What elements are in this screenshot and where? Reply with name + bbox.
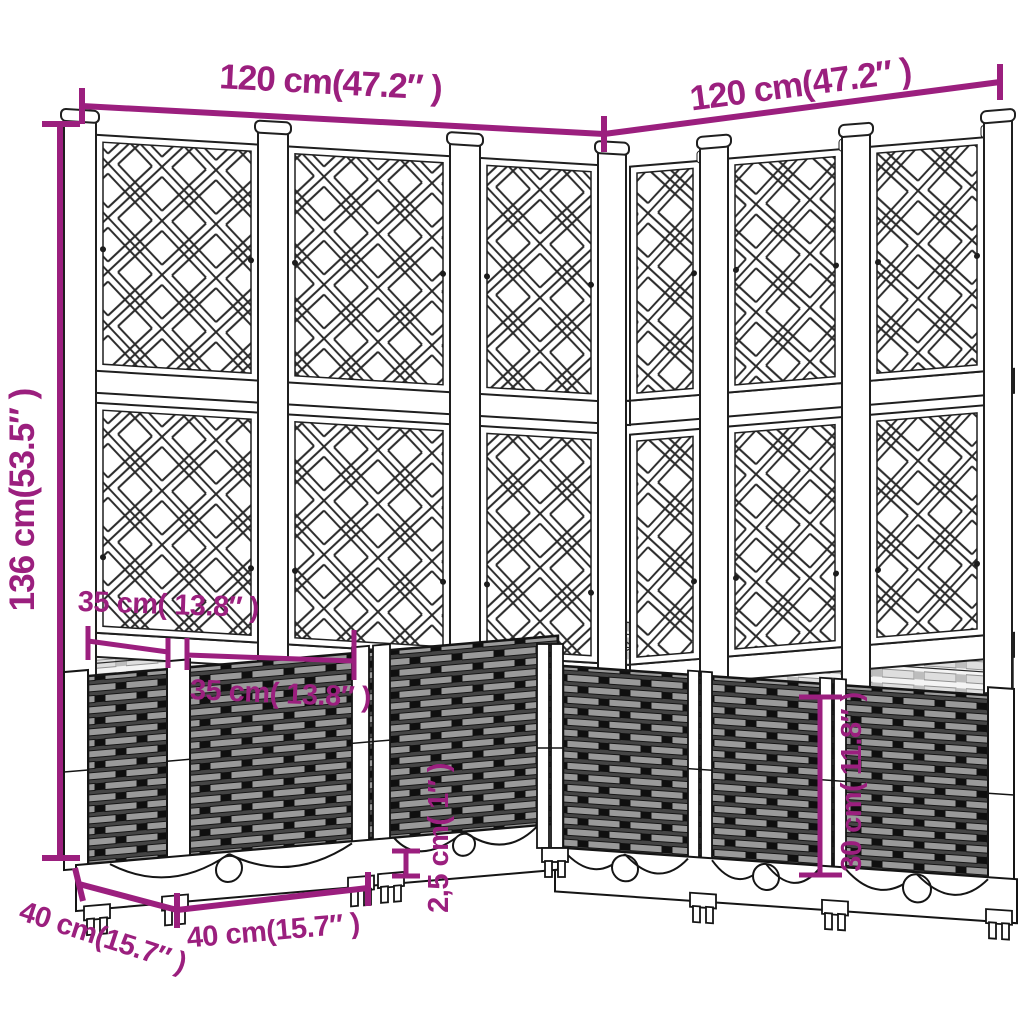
planter-left-arm [64, 628, 558, 937]
planter-right-arm [555, 657, 1017, 944]
diagram-svg: 120 cm(47.2″ ) 120 cm(47.2″ ) 136 cm(53.… [0, 0, 1024, 1024]
label-box-height: 30 cm( 11.8″ ) [836, 692, 868, 871]
trellis-right-wall [614, 109, 1015, 724]
label-planter-depth-top: 35 cm( 13.8″ ) [77, 586, 259, 624]
label-top-width-left: 120 cm(47.2″ ) [218, 57, 442, 108]
label-foot-height: 2,5 cm( 1″ ) [423, 763, 455, 913]
left-upper-panels [96, 135, 598, 401]
right-lower-panels [630, 405, 984, 664]
dim-top-width-right: 120 cm(47.2″ ) [604, 51, 1000, 134]
planter-inner-corner [537, 644, 568, 877]
label-base-module-width: 40 cm(15.7″ ) [185, 908, 361, 955]
planter-dimension-diagram: 120 cm(47.2″ ) 120 cm(47.2″ ) 136 cm(53.… [0, 0, 1024, 1024]
label-total-height: 136 cm(53.5″ ) [3, 389, 42, 612]
left-lower-panels [96, 403, 598, 663]
right-upper-panels [630, 137, 984, 400]
right-rattan-face [563, 666, 1013, 879]
